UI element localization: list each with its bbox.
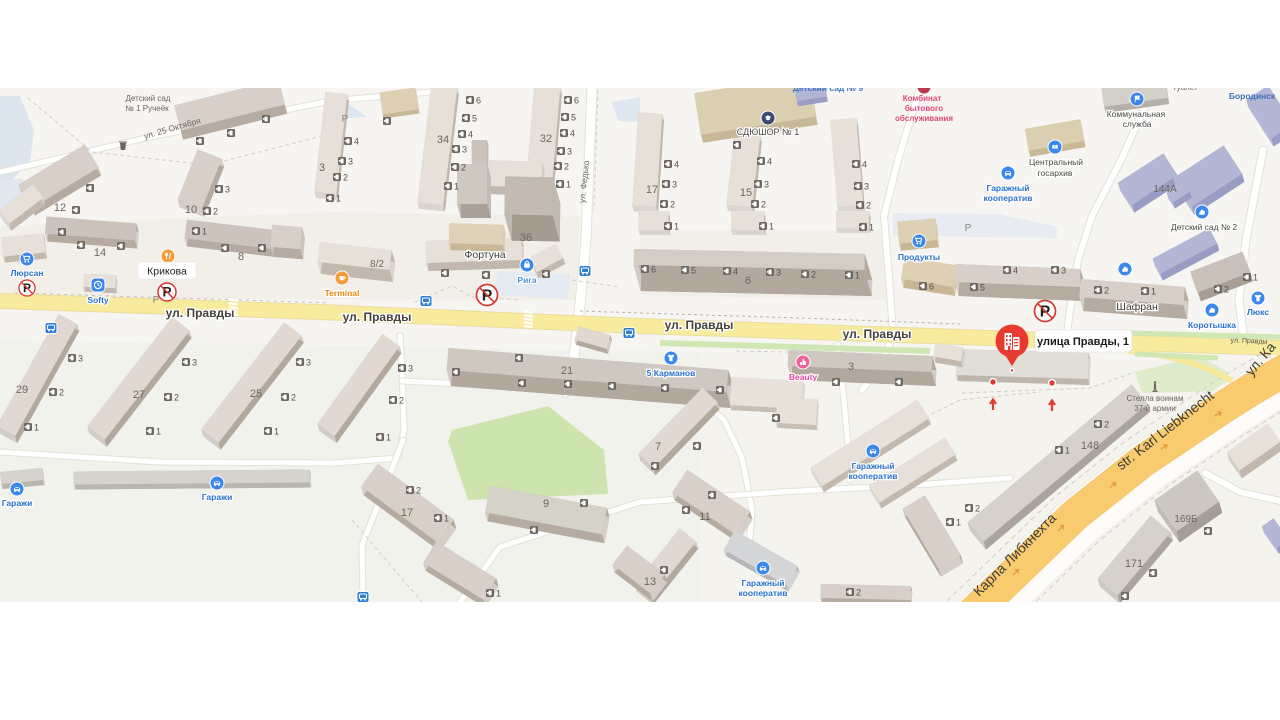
svg-text:9: 9 (543, 498, 549, 510)
svg-text:Гаражный: Гаражный (742, 578, 785, 588)
svg-text:3: 3 (672, 180, 677, 190)
svg-text:1: 1 (674, 222, 679, 232)
svg-text:2: 2 (461, 163, 466, 173)
svg-text:14: 14 (94, 247, 106, 259)
svg-text:5: 5 (980, 283, 985, 293)
svg-text:ул. Правды: ул. Правды (843, 327, 912, 341)
svg-text:1: 1 (769, 222, 774, 232)
svg-text:кооператив: кооператив (984, 193, 1033, 203)
svg-text:кооператив: кооператив (739, 588, 788, 598)
svg-text:2: 2 (761, 200, 766, 210)
svg-text:2: 2 (975, 504, 980, 514)
svg-text:4: 4 (733, 267, 738, 277)
svg-text:Коммунальная: Коммунальная (1107, 109, 1166, 119)
svg-text:12: 12 (54, 202, 66, 214)
svg-text:1: 1 (496, 589, 501, 599)
svg-text:1: 1 (869, 223, 874, 233)
svg-text:25: 25 (250, 388, 262, 400)
svg-text:Рига: Рига (517, 275, 536, 285)
svg-text:32: 32 (540, 133, 552, 145)
svg-text:3: 3 (848, 361, 854, 373)
svg-text:3: 3 (1061, 266, 1066, 276)
svg-text:1: 1 (1253, 273, 1258, 283)
svg-text:2: 2 (856, 588, 861, 598)
svg-text:2: 2 (811, 270, 816, 280)
svg-text:3: 3 (764, 180, 769, 190)
svg-text:5: 5 (472, 114, 477, 124)
svg-text:3: 3 (348, 157, 353, 167)
svg-text:11: 11 (699, 511, 710, 523)
svg-text:Шафран: Шафран (1116, 301, 1158, 313)
svg-text:1: 1 (336, 194, 341, 204)
svg-text:2: 2 (1104, 286, 1109, 296)
svg-text:1: 1 (855, 271, 860, 281)
svg-text:3: 3 (462, 145, 467, 155)
svg-text:P: P (965, 223, 972, 234)
svg-text:3: 3 (78, 354, 83, 364)
svg-text:144А: 144А (1153, 184, 1177, 195)
svg-text:5: 5 (691, 266, 696, 276)
svg-text:4: 4 (674, 160, 679, 170)
svg-text:Softy: Softy (87, 295, 109, 305)
svg-text:6: 6 (651, 265, 656, 275)
svg-text:1: 1 (202, 227, 207, 237)
svg-text:5 Карманов: 5 Карманов (647, 368, 696, 378)
svg-text:10: 10 (185, 204, 197, 216)
svg-text:Детский сад № 2: Детский сад № 2 (1171, 222, 1238, 232)
svg-text:4: 4 (862, 160, 867, 170)
svg-text:148: 148 (1081, 440, 1099, 452)
svg-text:6: 6 (745, 275, 751, 287)
svg-text:1: 1 (34, 423, 39, 433)
svg-text:1: 1 (386, 433, 391, 443)
svg-text:6: 6 (929, 282, 934, 292)
svg-text:2: 2 (399, 396, 404, 406)
svg-text:6: 6 (574, 96, 579, 106)
svg-text:1: 1 (274, 427, 279, 437)
svg-text:4: 4 (1013, 266, 1018, 276)
svg-text:171: 171 (1125, 558, 1143, 570)
svg-text:кооператив: кооператив (849, 471, 898, 481)
svg-text:ул. Правды: ул. Правды (343, 310, 412, 324)
svg-text:13: 13 (644, 576, 656, 588)
svg-text:7: 7 (655, 441, 661, 453)
svg-text:Гаражи: Гаражи (2, 498, 33, 508)
svg-text:Terminal: Terminal (325, 288, 360, 298)
svg-text:3: 3 (567, 147, 572, 157)
svg-text:ул. Правды: ул. Правды (665, 318, 734, 332)
svg-text:2: 2 (59, 388, 64, 398)
svg-text:1: 1 (566, 180, 571, 190)
svg-text:3: 3 (776, 268, 781, 278)
svg-text:4: 4 (354, 137, 359, 147)
svg-text:2: 2 (564, 162, 569, 172)
svg-text:2: 2 (866, 201, 871, 211)
svg-text:15: 15 (740, 187, 752, 199)
svg-text:8/2: 8/2 (370, 259, 384, 270)
svg-text:4: 4 (570, 129, 575, 139)
svg-text:Люкс: Люкс (1247, 307, 1269, 317)
svg-text:ул. Правды: ул. Правды (166, 306, 235, 320)
svg-text:2: 2 (1224, 285, 1229, 295)
svg-text:Детский сад: Детский сад (126, 94, 171, 103)
svg-text:Центральный: Центральный (1029, 157, 1083, 167)
svg-text:обслуживания: обслуживания (895, 114, 953, 123)
svg-text:2: 2 (174, 393, 179, 403)
svg-text:СДЮШОР № 1: СДЮШОР № 1 (737, 127, 799, 137)
svg-text:2: 2 (1104, 420, 1109, 430)
svg-text:3: 3 (408, 364, 413, 374)
svg-text:27: 27 (133, 389, 145, 401)
svg-text:36: 36 (520, 232, 532, 244)
svg-text:5: 5 (571, 113, 576, 123)
svg-text:Стелла воинам: Стелла воинам (1127, 394, 1184, 403)
svg-text:Продукты: Продукты (898, 252, 940, 262)
svg-text:1: 1 (444, 514, 449, 524)
svg-text:29: 29 (16, 384, 28, 396)
svg-text:3: 3 (192, 358, 197, 368)
svg-text:3: 3 (306, 358, 311, 368)
svg-text:2: 2 (343, 173, 348, 183)
svg-text:Гаражный: Гаражный (987, 183, 1030, 193)
svg-text:Люрсан: Люрсан (10, 268, 43, 278)
svg-text:Гаражный: Гаражный (852, 461, 895, 471)
svg-text:Beauty: Beauty (789, 372, 818, 382)
svg-text:№ 1 Ручеёк: № 1 Ручеёк (125, 104, 169, 113)
svg-text:2: 2 (213, 207, 218, 217)
svg-text:1: 1 (454, 182, 459, 192)
svg-text:Гаражи: Гаражи (202, 492, 233, 502)
svg-text:169Б: 169Б (1174, 514, 1198, 525)
svg-text:Крикова: Крикова (147, 266, 187, 278)
svg-text:2: 2 (416, 486, 421, 496)
svg-text:4: 4 (767, 157, 772, 167)
svg-text:1: 1 (1065, 446, 1070, 456)
svg-text:1: 1 (956, 518, 961, 528)
svg-text:21: 21 (561, 365, 573, 377)
svg-text:3: 3 (864, 182, 869, 192)
svg-text:34: 34 (437, 134, 449, 146)
svg-text:Фортуна: Фортуна (464, 249, 505, 261)
svg-text:1: 1 (1151, 287, 1156, 297)
svg-text:госархив: госархив (1038, 168, 1073, 178)
svg-text:2: 2 (670, 200, 675, 210)
svg-text:3: 3 (319, 162, 325, 174)
svg-text:улица Правды, 1: улица Правды, 1 (1037, 336, 1129, 348)
svg-text:17: 17 (646, 184, 658, 196)
svg-text:2: 2 (291, 393, 296, 403)
svg-text:6: 6 (476, 96, 481, 106)
svg-text:1: 1 (156, 427, 161, 437)
svg-text:3: 3 (225, 185, 230, 195)
svg-text:Комбинат: Комбинат (903, 94, 942, 103)
svg-text:17: 17 (401, 507, 413, 519)
svg-text:8: 8 (238, 251, 244, 263)
svg-text:служба: служба (1123, 119, 1152, 129)
svg-text:Бородинск: Бородинск (1229, 91, 1276, 101)
svg-text:37-й армии: 37-й армии (1134, 404, 1176, 413)
svg-text:Коротышка: Коротышка (1188, 320, 1236, 330)
svg-text:бытового: бытового (905, 104, 943, 113)
svg-text:P: P (342, 114, 349, 125)
svg-text:4: 4 (468, 130, 473, 140)
